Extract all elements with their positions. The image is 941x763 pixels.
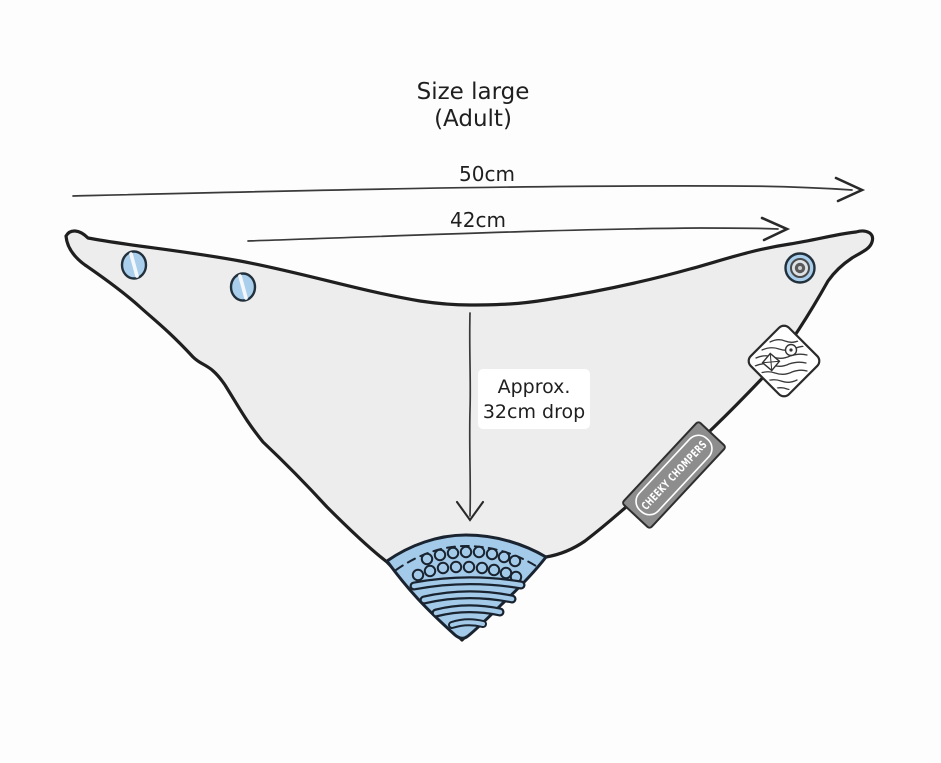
bib-diagram: Size large (Adult) 50cm 42cm	[0, 0, 941, 763]
bib-size-diagram-page: Size large (Adult) 50cm 42cm	[0, 0, 941, 763]
snap-button-icon	[122, 252, 146, 279]
drop-arrow-line	[470, 313, 471, 516]
tumble-dry-symbol-icon	[786, 345, 797, 356]
measurement-42cm-line	[248, 228, 778, 241]
measurement-50cm-line	[73, 186, 852, 196]
teether-corner-icon	[387, 535, 546, 638]
measurement-50cm-label: 50cm	[459, 162, 515, 186]
measurement-42cm-label: 42cm	[450, 208, 506, 232]
drop-label-line-2: 32cm drop	[483, 401, 585, 423]
measurement-50cm: 50cm	[73, 162, 862, 201]
diagram-title: Size large (Adult)	[417, 79, 530, 132]
snap-button-icon	[231, 274, 255, 301]
drop-label-line-1: Approx.	[498, 376, 571, 398]
title-line-1: Size large	[417, 79, 530, 105]
title-line-2: (Adult)	[434, 106, 512, 132]
measurement-42cm: 42cm	[248, 208, 787, 241]
snap-socket-icon	[786, 254, 815, 283]
